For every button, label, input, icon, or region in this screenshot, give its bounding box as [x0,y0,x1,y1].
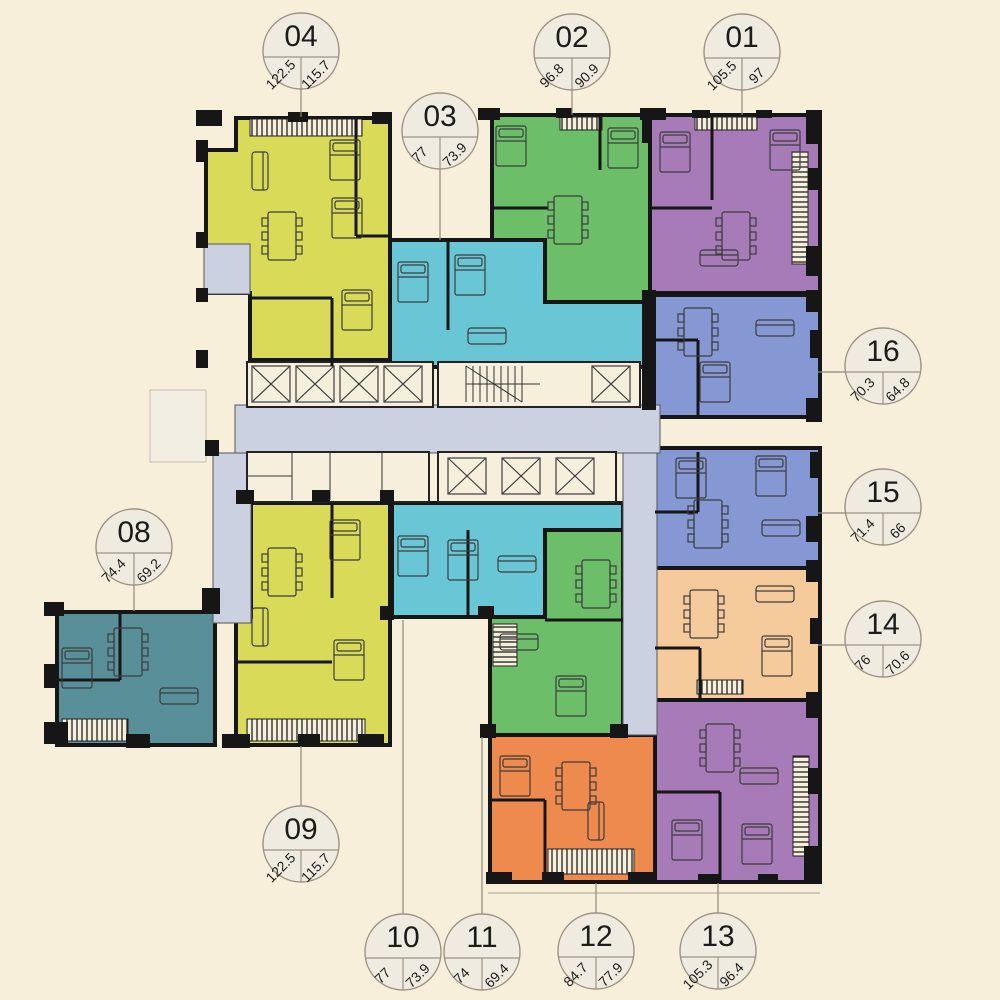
callout-unit-14[interactable]: 14 76 70.6 [845,601,921,678]
unit-number: 14 [866,608,899,641]
callout-unit-08[interactable]: 08 74.4 69.2 [96,509,172,586]
callout-unit-10[interactable]: 10 77 73.9 [365,914,441,991]
floor-plan-canvas: 04 122.5 115.7 02 96.8 90.9 01 105.5 97 … [0,0,1000,1000]
unit-number: 09 [284,813,317,846]
unit-15[interactable] [655,448,820,568]
unit-09[interactable] [236,503,390,745]
terrace [150,390,206,462]
unit-number: 12 [579,920,612,953]
unit-number: 15 [866,476,899,509]
callout-unit-15[interactable]: 15 71.4 66 [845,469,921,546]
unit-number: 04 [284,20,317,53]
unit-number: 03 [423,100,456,133]
unit-number: 02 [555,21,588,54]
callout-unit-16[interactable]: 16 70.3 64.8 [845,328,921,405]
callout-unit-02[interactable]: 02 96.8 90.9 [534,14,610,91]
unit-16[interactable] [650,295,820,417]
unit-number: 01 [725,21,758,54]
floor-plan-page: 04 122.5 115.7 02 96.8 90.9 01 105.5 97 … [0,0,1000,1000]
callout-unit-12[interactable]: 12 84.7 77.9 [558,913,634,990]
unit-number: 10 [386,921,419,954]
callout-unit-11[interactable]: 11 74 69.4 [444,914,520,991]
unit-number: 11 [466,921,497,954]
unit-number: 08 [117,516,150,549]
unit-number: 13 [701,920,734,953]
callout-unit-03[interactable]: 03 77 73.9 [402,93,478,170]
unit-number: 16 [866,335,899,368]
